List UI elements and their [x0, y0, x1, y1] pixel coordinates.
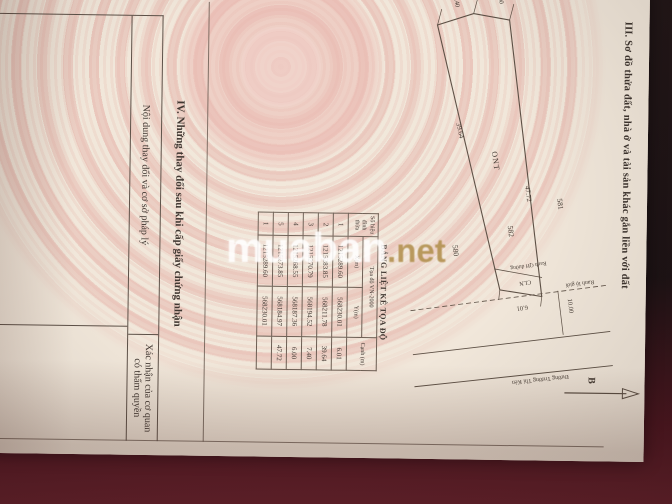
edge-dim-7-40: 7.40 — [452, 0, 461, 8]
parcel-number-581: 581 — [555, 198, 565, 211]
edge-dim-6-00: 6.00 — [496, 0, 505, 4]
muaban-watermark: muaban.net — [226, 224, 446, 272]
changes-col2-header: Xác nhận của cơ quan có thẩm quyền — [127, 335, 158, 441]
edge-length: 6.00 — [286, 336, 301, 369]
edge-length: 7.40 — [301, 337, 316, 370]
road-width-dim-10-00: 10.00 — [566, 298, 575, 313]
ranh-lo-gioi-label: Ranh lộ giới — [565, 278, 595, 288]
watermark-tld: .net — [387, 232, 446, 269]
edge-dim-6-01: 6.01 — [516, 303, 528, 312]
coord-y: 568230.01 — [332, 287, 348, 338]
section-divider-line — [203, 2, 210, 442]
coord-y: 568194.52 — [302, 286, 318, 337]
edge-dim-39-64: 39.64 — [454, 122, 465, 140]
dim-tick — [438, 9, 442, 25]
road-edge-line — [413, 329, 610, 358]
edge-length — [256, 336, 271, 369]
coord-y: 568187.36 — [287, 286, 303, 337]
col-header-edge: Cạnh (m) — [346, 337, 376, 370]
dim-tick — [474, 0, 478, 14]
section4-heading: IV. Những thay đổi sau khi cấp giấy chứn… — [170, 0, 188, 442]
ranh-qh-label: Ranh QH đường — [510, 260, 547, 271]
edge-dim-47-72: 47.72 — [523, 186, 533, 203]
edge-length: 6.01 — [331, 337, 346, 370]
road-name-label: Đường Trường Thi Kèn — [512, 373, 570, 385]
north-label: B — [586, 377, 597, 384]
changes-col1-empty-cell — [0, 13, 132, 326]
land-use-ont-label: ONT — [490, 151, 502, 172]
dim-tick — [499, 290, 500, 300]
parcel-boundary — [434, 13, 546, 296]
edge-length: 47.72 — [271, 336, 286, 369]
changes-table: Nội dung thay đổi và cơ sở pháp lý Xác n… — [0, 12, 164, 441]
dim-tick — [541, 297, 542, 307]
coord-y: 568184.97 — [272, 286, 288, 337]
dim-line — [557, 291, 564, 335]
coord-y: 568211.78 — [317, 286, 333, 337]
dim-tick — [510, 4, 514, 20]
coord-y: 568230.01 — [257, 286, 273, 337]
edge-length: 39.64 — [316, 337, 331, 370]
col-header-y: Y(m) — [347, 287, 363, 338]
parcel-number-582: 582 — [506, 225, 516, 238]
land-use-cln-label: CLN — [518, 278, 531, 286]
photo-frame: III. Sơ đồ thửa đất, nhà ở và tài sản kh… — [0, 0, 672, 504]
changes-col1-header: Nội dung thay đổi và cơ sở pháp lý — [128, 16, 162, 335]
north-arrow — [564, 393, 626, 394]
parcel-number-580: 580 — [450, 244, 461, 257]
watermark-name: muaban — [226, 224, 387, 271]
